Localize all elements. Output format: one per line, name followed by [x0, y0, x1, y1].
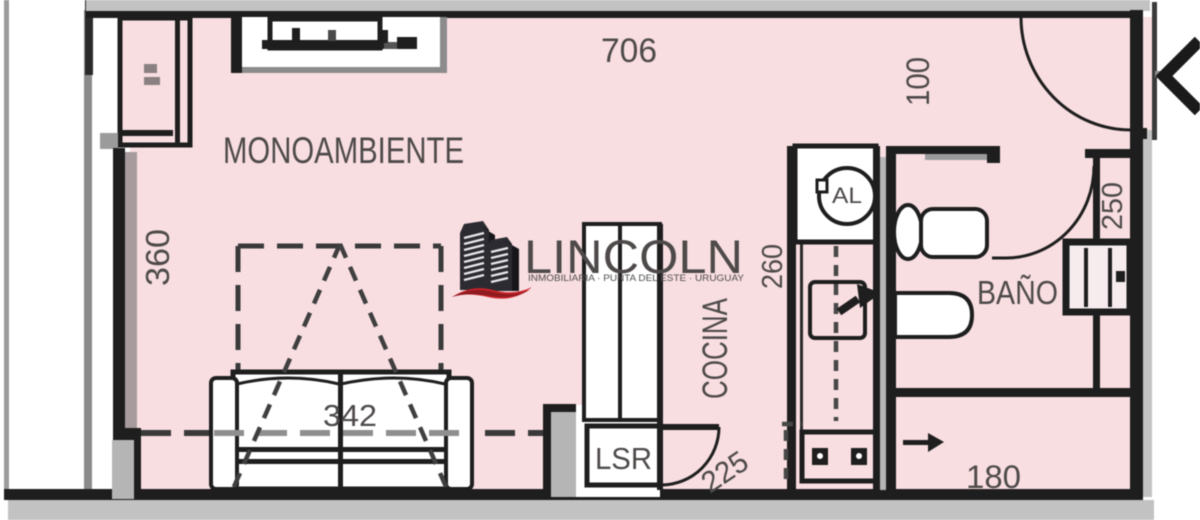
svg-text:342: 342 — [323, 398, 377, 433]
svg-text:360: 360 — [139, 229, 176, 286]
svg-text:BAÑO: BAÑO — [977, 274, 1058, 311]
svg-text:LSR: LSR — [595, 441, 652, 476]
svg-text:COCINA: COCINA — [696, 298, 735, 399]
svg-text:260: 260 — [757, 244, 789, 289]
svg-text:250: 250 — [1097, 182, 1129, 230]
svg-text:100: 100 — [900, 57, 936, 106]
svg-text:AL: AL — [832, 183, 862, 208]
svg-text:180: 180 — [966, 459, 1021, 495]
svg-text:MONOAMBIENTE: MONOAMBIENTE — [223, 130, 464, 171]
svg-text:706: 706 — [601, 32, 657, 70]
svg-text:INMOBILIARIA · PUNTA DEL ESTE: INMOBILIARIA · PUNTA DEL ESTE · URUGUAY — [528, 273, 745, 284]
